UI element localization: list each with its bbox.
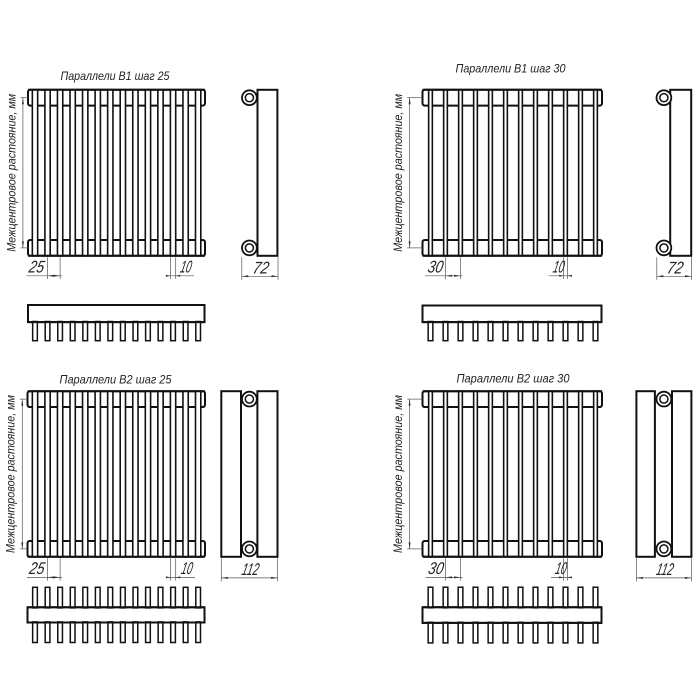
svg-text:Параллели В2 шаг 30: Параллели В2 шаг 30	[457, 371, 570, 385]
svg-text:Параллели В1 шаг 25: Параллели В1 шаг 25	[61, 69, 170, 83]
svg-text:Параллели В1 шаг 30: Параллели В1 шаг 30	[456, 62, 566, 76]
svg-text:Параллели В2 шаг 25: Параллели В2 шаг 25	[60, 372, 172, 386]
svg-text:Межцентровое растояние, мм: Межцентровое растояние, мм	[4, 395, 18, 553]
svg-text:Межцентровое растояние, мм: Межцентровое растояние, мм	[391, 395, 405, 553]
svg-text:Межцентровое растояние, мм: Межцентровое растояние, мм	[391, 93, 405, 251]
svg-text:Межцентровое растояние, мм: Межцентровое растояние, мм	[4, 93, 18, 251]
